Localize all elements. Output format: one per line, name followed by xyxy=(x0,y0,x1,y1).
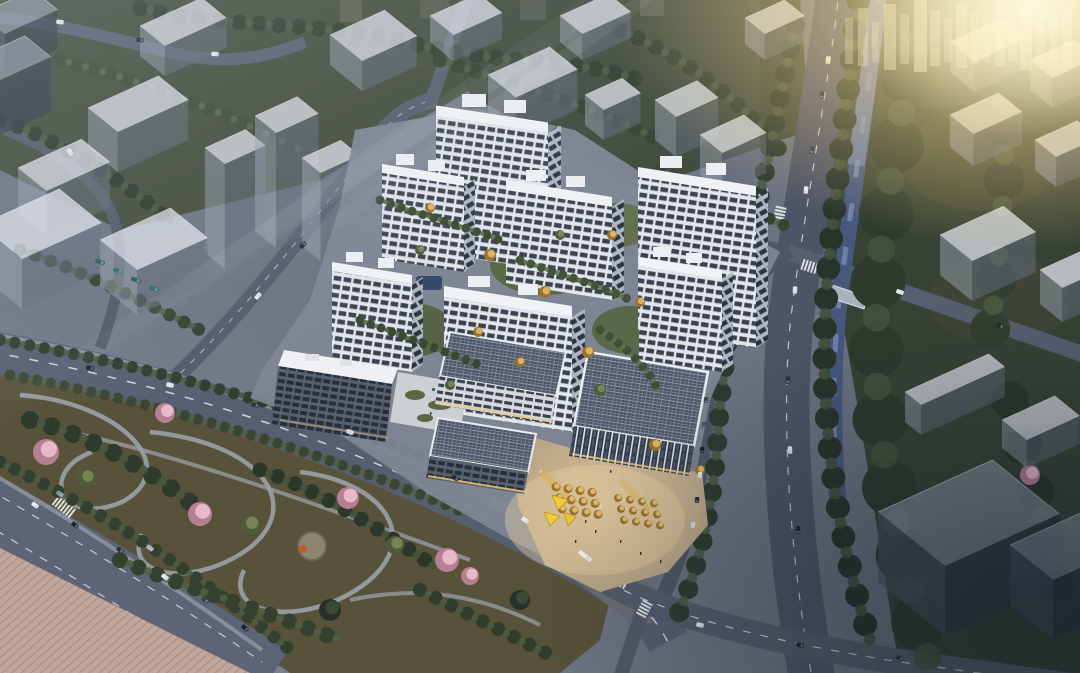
atmosphere xyxy=(0,0,1080,673)
aerial-rendering-canvas xyxy=(0,0,1080,673)
masterplan-rendering xyxy=(0,0,1080,673)
